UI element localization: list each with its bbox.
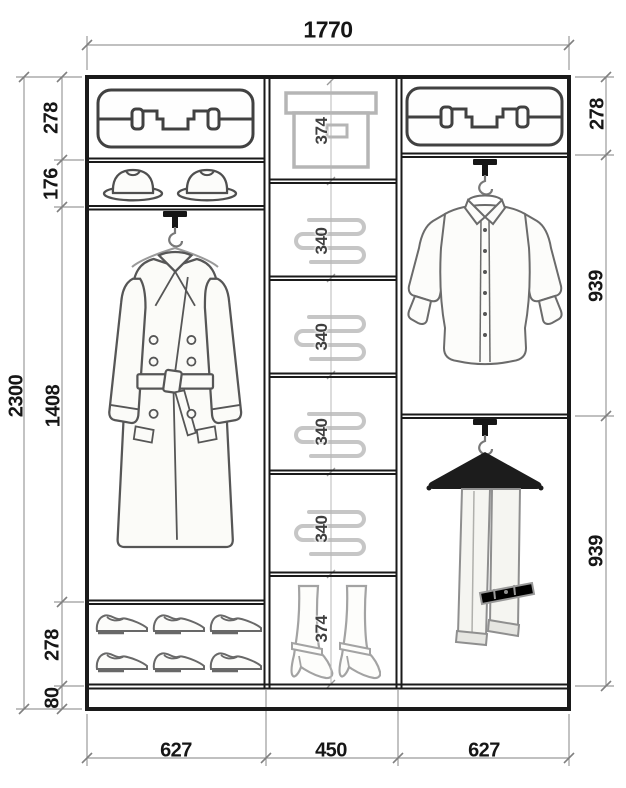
dim-left-shoe-shelf: 278 <box>42 629 65 661</box>
dim-middle-boots-cell: 374 <box>312 616 332 643</box>
dim-right-shelf-top: 278 <box>587 98 610 130</box>
dim-left-hat-shelf: 176 <box>41 168 64 200</box>
dim-total-height: 2300 <box>6 375 29 418</box>
dim-middle-box-cell: 374 <box>312 118 332 145</box>
dim-middle-shelf-4: 340 <box>312 516 332 543</box>
dim-left-plinth: 80 <box>42 687 65 708</box>
dim-left-shelf-top: 278 <box>41 102 64 134</box>
dim-middle-shelf-3: 340 <box>312 419 332 446</box>
dim-bottom-right-column: 627 <box>468 740 500 763</box>
dim-middle-shelf-2: 340 <box>312 324 332 351</box>
dim-bottom-middle-column: 450 <box>315 740 347 763</box>
dim-middle-shelf-1: 340 <box>312 228 332 255</box>
wardrobe-diagram: 1770 2300 278 176 1408 278 80 278 939 93… <box>0 0 626 788</box>
dim-left-hanging: 1408 <box>43 385 66 428</box>
dim-bottom-left-column: 627 <box>160 740 192 763</box>
dim-total-width: 1770 <box>303 17 352 44</box>
dim-right-lower: 939 <box>586 535 609 567</box>
dim-right-upper: 939 <box>586 270 609 302</box>
